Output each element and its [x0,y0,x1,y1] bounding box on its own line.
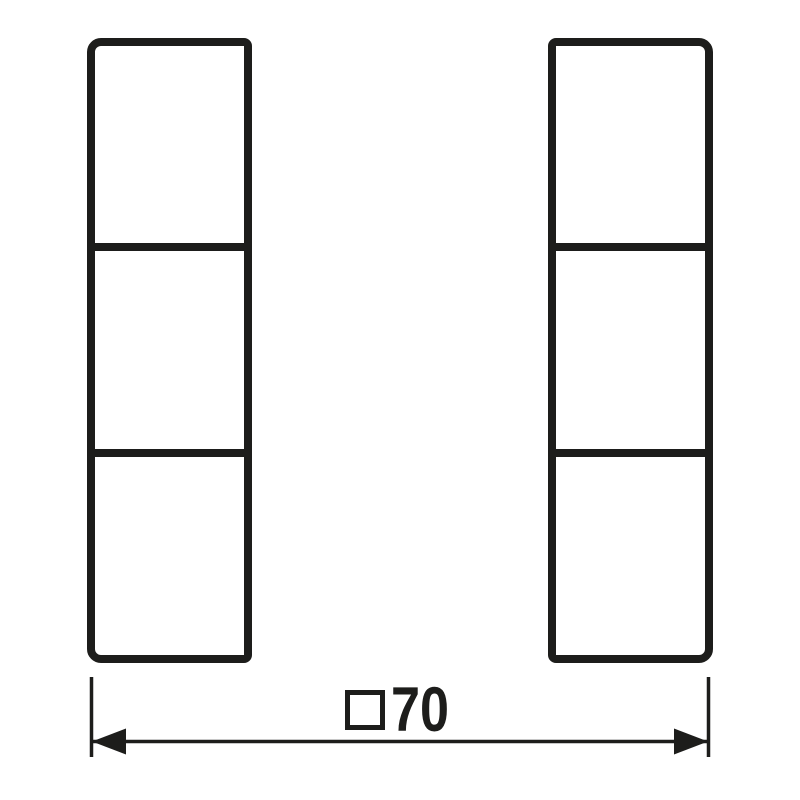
square-outline-icon [348,693,383,728]
drawing-svg: 70 [0,0,800,800]
right-column-outline [552,42,709,659]
right-rocker-column [552,42,709,659]
left-rocker-column [91,42,248,659]
dimension-value: 70 [391,675,449,745]
left-column-outline [91,42,248,659]
dimensional-drawing: 70 [0,0,800,800]
arrow-right-icon [674,729,708,755]
arrow-left-icon [92,729,126,755]
dimension-annotation: 70 [92,675,709,757]
